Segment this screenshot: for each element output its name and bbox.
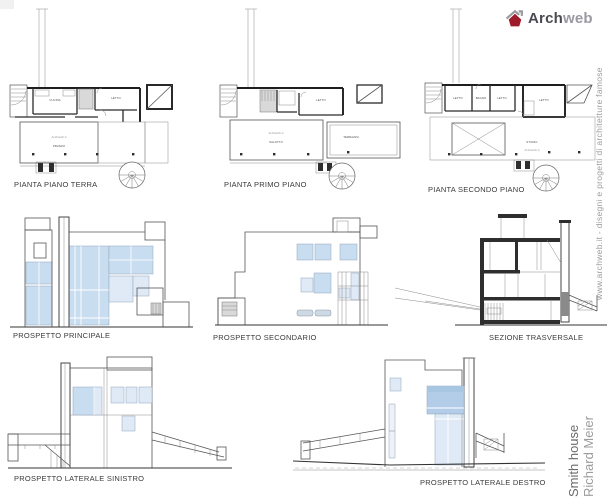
archweb-watermark: Archweb.it	[268, 131, 283, 135]
building-outline	[218, 218, 377, 325]
section-structure	[480, 214, 560, 325]
elevation-right-drawing	[290, 353, 550, 485]
plan-second-drawing: LETTO BAGNO LETTO LETTO STUDIO Archweb.i…	[420, 5, 615, 200]
caption-elev-secondary: PROSPETTO SECONDARIO	[213, 334, 317, 342]
caption-elev-right: PROSPETTO LATERALE DESTRO	[420, 479, 546, 487]
spiral-stair	[119, 162, 145, 188]
chimney-flue	[450, 9, 462, 83]
room-label-letto2: LETTO	[497, 96, 507, 100]
side-ramp	[152, 432, 226, 460]
room-label-letto1: LETTO	[453, 96, 463, 100]
caption-elev-main: PROSPETTO PRINCIPALE	[13, 332, 110, 340]
room-label-terrazza: TERRAZZA	[343, 135, 359, 139]
entry-ramp	[301, 429, 385, 459]
project-name: Smith house	[566, 377, 581, 497]
lower-hall	[20, 122, 168, 166]
room-label-studio: STUDIO	[526, 140, 538, 144]
right-annex	[569, 295, 597, 311]
caption-elev-left: PROSPETTO LATERALE SINISTRO	[14, 475, 144, 483]
room-label-letto: LETTO	[111, 96, 121, 100]
room-label-letto: LETTO	[316, 98, 326, 102]
elevation-secondary-drawing	[210, 210, 410, 338]
caption-section: SEZIONE TRASVERSALE	[489, 334, 583, 342]
stair-tower	[10, 85, 27, 117]
chimney-flue	[36, 9, 48, 88]
plan-ground-drawing: CUCINA LETTO Archweb.it PRANZO	[5, 5, 205, 195]
room-label-cucina: CUCINA	[49, 98, 60, 102]
section-drawing	[395, 208, 615, 348]
deck-and-void	[430, 117, 595, 160]
room-label-letto3: LETTO	[539, 98, 549, 102]
stair-screen	[338, 272, 368, 325]
archweb-watermark: Archweb.it	[51, 135, 66, 139]
spiral-stair	[329, 163, 355, 189]
fireplace-square	[147, 85, 172, 109]
windows	[73, 387, 152, 431]
room-label-bagno: BAGNO	[476, 96, 487, 100]
terrace	[327, 122, 400, 158]
caption-plan-first: PIANTA PRIMO PIANO	[224, 181, 307, 189]
elevation-main-drawing	[5, 210, 205, 335]
caption-plan-ground: PIANTA PIANO TERRA	[14, 181, 97, 189]
stair-tower	[425, 83, 442, 113]
ground-line	[293, 461, 545, 470]
windows	[297, 244, 357, 316]
entry-steps	[36, 162, 56, 173]
archweb-watermark: Archweb.it	[524, 148, 539, 152]
caption-plan-second: PIANTA SECONDO PIANO	[428, 186, 525, 194]
upper-rooms	[237, 88, 343, 115]
plan-first-drawing: LETTO Archweb.it SALOTTO TERRAZZA	[215, 5, 415, 195]
room-label-salotto: SALOTTO	[269, 140, 283, 144]
entry-steps	[514, 160, 534, 171]
windows	[389, 378, 464, 465]
spiral-stair	[533, 165, 559, 191]
vertical-project-title: Smith house Richard Meier	[566, 377, 596, 497]
drawing-sheet: Archweb www.archweb.it - disegni e proge…	[0, 0, 615, 500]
stair-tower	[220, 85, 237, 117]
chimney-flue	[245, 9, 257, 88]
right-annex	[476, 433, 504, 458]
terrain-slope	[395, 288, 480, 310]
roof-square	[357, 85, 382, 103]
elevation-left-drawing	[5, 353, 245, 481]
room-label-pranzo: PRANZO	[53, 144, 66, 148]
roof-parallelogram	[567, 85, 592, 103]
architect-name: Richard Meier	[581, 377, 596, 497]
section-chimney	[547, 220, 571, 322]
